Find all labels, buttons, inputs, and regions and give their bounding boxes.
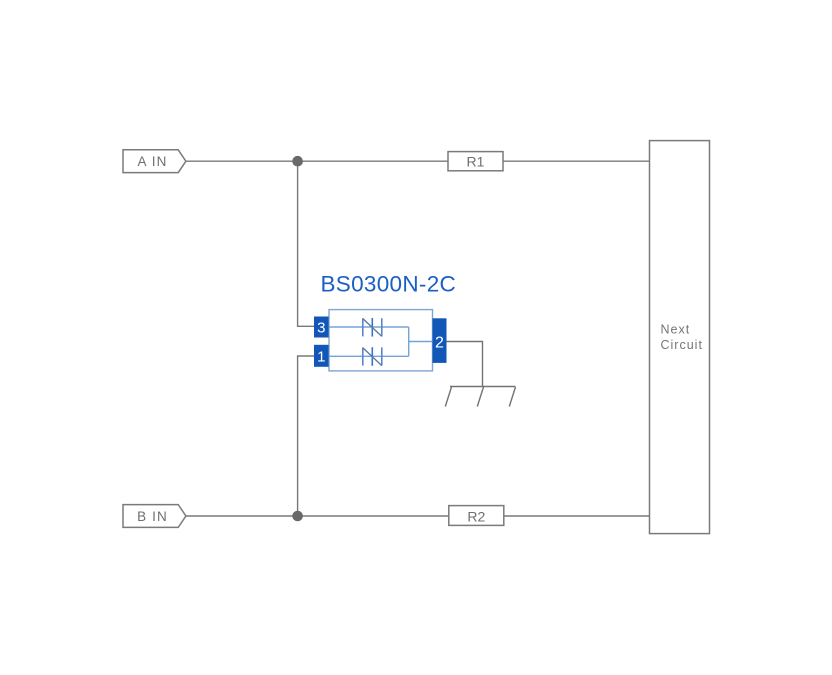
svg-text:A IN: A IN <box>138 154 168 169</box>
svg-text:1: 1 <box>317 349 325 366</box>
svg-text:R1: R1 <box>467 154 485 170</box>
svg-text:R2: R2 <box>467 508 485 524</box>
svg-text:2: 2 <box>435 334 444 351</box>
svg-text:3: 3 <box>317 319 325 336</box>
svg-text:Next: Next <box>661 322 691 336</box>
svg-text:B IN: B IN <box>137 509 168 524</box>
svg-text:BS0300N-2C: BS0300N-2C <box>321 272 457 297</box>
svg-text:Circuit: Circuit <box>661 338 703 352</box>
